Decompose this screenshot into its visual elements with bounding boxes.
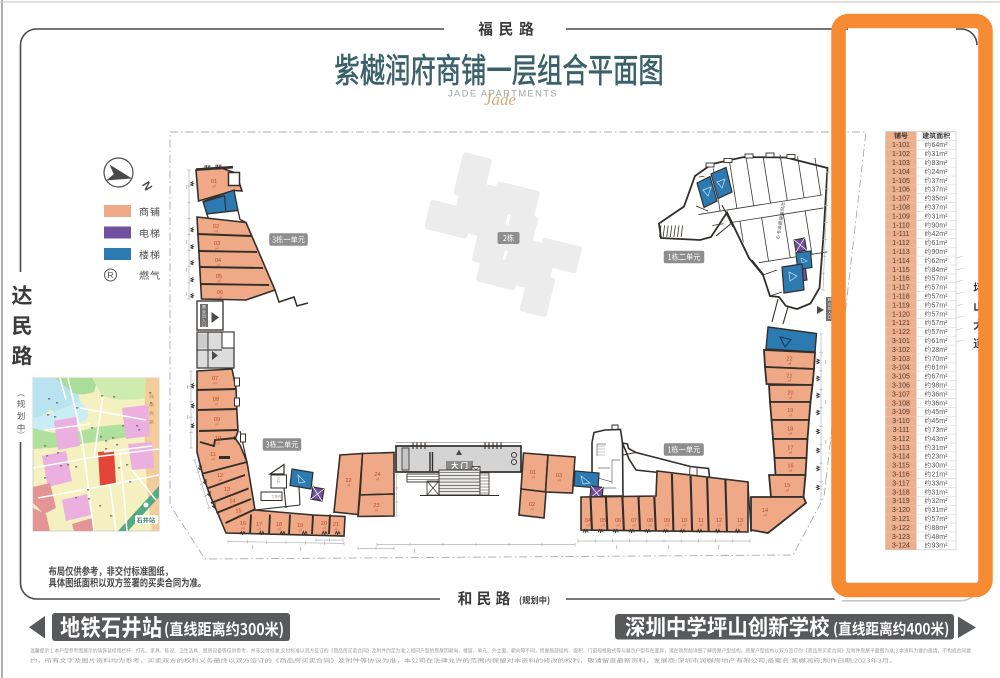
svg-text:23m²: 23m²: [932, 454, 949, 461]
svg-text:11: 11: [210, 452, 216, 458]
svg-text:84m²: 84m²: [932, 267, 949, 274]
svg-text:57m²: 57m²: [932, 302, 949, 309]
svg-text:90m²: 90m²: [932, 249, 949, 256]
svg-text:88m²: 88m²: [932, 525, 949, 532]
svg-text:31m²: 31m²: [932, 507, 949, 514]
svg-text:16: 16: [787, 464, 793, 470]
svg-text:90m²: 90m²: [932, 222, 949, 229]
svg-text:3-108: 3-108: [892, 400, 910, 407]
svg-text:61m²: 61m²: [932, 365, 949, 372]
svg-text:05: 05: [216, 274, 222, 280]
svg-text:3-101: 3-101: [892, 338, 910, 345]
svg-text:24m²: 24m²: [932, 169, 949, 176]
svg-text:36m²: 36m²: [932, 400, 949, 407]
svg-text:3-113: 3-113: [892, 445, 909, 452]
svg-text:73m²: 73m²: [932, 427, 949, 434]
svg-text:1-108: 1-108: [892, 205, 910, 212]
svg-text:03: 03: [556, 473, 562, 479]
svg-text:36m²: 36m²: [932, 391, 949, 398]
svg-text:3-102: 3-102: [892, 347, 910, 354]
svg-text:13: 13: [737, 518, 743, 524]
svg-text:37m²: 37m²: [932, 187, 949, 194]
svg-text:3-124: 3-124: [892, 543, 910, 550]
svg-text:24: 24: [374, 472, 380, 478]
svg-text:3-105: 3-105: [892, 374, 910, 381]
svg-text:21: 21: [333, 522, 339, 528]
svg-text:22: 22: [345, 478, 351, 484]
svg-text:14: 14: [762, 508, 768, 514]
svg-text:23: 23: [373, 503, 379, 509]
svg-text:17: 17: [787, 446, 793, 452]
svg-text:03: 03: [214, 241, 220, 247]
svg-text:1-119: 1-119: [892, 302, 909, 309]
svg-text:3-106: 3-106: [892, 383, 910, 390]
svg-text:19: 19: [297, 523, 303, 529]
svg-text:3-114: 3-114: [892, 454, 909, 461]
svg-text:01: 01: [211, 179, 217, 185]
svg-text:62m²: 62m²: [932, 258, 949, 265]
svg-text:01: 01: [530, 470, 536, 476]
svg-text:21m²: 21m²: [932, 472, 949, 479]
svg-text:3-107: 3-107: [892, 391, 910, 398]
svg-text:09: 09: [664, 518, 670, 524]
svg-text:14: 14: [229, 499, 235, 505]
svg-text:45m²: 45m²: [932, 418, 949, 425]
svg-text:57m²: 57m²: [932, 329, 949, 336]
svg-text:98m²: 98m²: [932, 383, 949, 390]
svg-text:20: 20: [787, 391, 793, 397]
svg-text:3-109: 3-109: [892, 409, 910, 416]
svg-text:05: 05: [600, 518, 606, 524]
svg-text:1-104: 1-104: [892, 169, 910, 176]
svg-text:21: 21: [786, 373, 792, 379]
svg-text:04: 04: [585, 518, 591, 524]
svg-text:45m²: 45m²: [932, 409, 949, 416]
svg-text:31m²: 31m²: [932, 151, 949, 158]
svg-text:3-112: 3-112: [892, 436, 909, 443]
svg-text:1-120: 1-120: [892, 311, 910, 318]
svg-text:1-103: 1-103: [892, 160, 910, 167]
svg-text:3-111: 3-111: [893, 427, 910, 434]
svg-text:30m²: 30m²: [932, 463, 949, 470]
svg-text:19: 19: [787, 408, 793, 414]
svg-text:57m²: 57m²: [932, 311, 949, 318]
svg-text:3-123: 3-123: [892, 534, 910, 541]
svg-text:43m²: 43m²: [932, 436, 949, 443]
svg-text:1-102: 1-102: [892, 151, 910, 158]
svg-text:3-122: 3-122: [892, 525, 910, 532]
svg-text:61m²: 61m²: [932, 240, 949, 247]
svg-text:08: 08: [213, 397, 219, 403]
svg-text:31m²: 31m²: [932, 445, 949, 452]
svg-text:42m²: 42m²: [932, 231, 949, 238]
svg-text:09: 09: [214, 417, 220, 423]
svg-text:1-113: 1-113: [892, 249, 909, 256]
svg-text:20: 20: [321, 521, 327, 527]
svg-text:83m²: 83m²: [932, 160, 949, 167]
svg-text:57m²: 57m²: [932, 285, 949, 292]
svg-text:11: 11: [698, 518, 704, 524]
svg-text:28m²: 28m²: [932, 347, 949, 354]
svg-text:32m²: 32m²: [932, 498, 949, 505]
svg-text:31m²: 31m²: [932, 489, 949, 496]
svg-text:16: 16: [240, 521, 246, 527]
svg-text:3-119: 3-119: [892, 498, 909, 505]
svg-text:3-103: 3-103: [892, 356, 910, 363]
svg-text:57m²: 57m²: [932, 516, 949, 523]
svg-text:1-106: 1-106: [892, 187, 910, 194]
svg-text:3-121: 3-121: [892, 516, 910, 523]
svg-text:1-117: 1-117: [892, 285, 909, 292]
svg-text:10: 10: [215, 436, 221, 442]
svg-text:13: 13: [224, 487, 230, 493]
svg-text:37m²: 37m²: [932, 178, 949, 185]
svg-text:08: 08: [647, 518, 653, 524]
svg-text:70m²: 70m²: [932, 356, 949, 363]
svg-text:R: R: [107, 270, 113, 280]
svg-text:1-109: 1-109: [892, 213, 910, 220]
svg-text:67m²: 67m²: [932, 374, 949, 381]
svg-text:1-111: 1-111: [893, 231, 910, 238]
svg-text:17: 17: [256, 522, 262, 528]
svg-text:1-118: 1-118: [892, 294, 909, 301]
svg-text:1-107: 1-107: [892, 196, 910, 203]
svg-text:1-114: 1-114: [892, 258, 909, 265]
svg-text:1-101: 1-101: [892, 142, 910, 149]
svg-text:07: 07: [212, 376, 218, 382]
svg-text:06: 06: [217, 290, 223, 296]
svg-text:57m²: 57m²: [932, 294, 949, 301]
svg-text:1-115: 1-115: [892, 267, 909, 274]
svg-text:04: 04: [215, 258, 221, 264]
svg-text:3-118: 3-118: [892, 489, 909, 496]
svg-text:64m²: 64m²: [932, 142, 949, 149]
svg-text:1-110: 1-110: [892, 222, 909, 229]
svg-text:31m²: 31m²: [932, 213, 949, 220]
svg-text:15: 15: [235, 509, 241, 515]
svg-text:3-120: 3-120: [892, 507, 910, 514]
svg-text:1-121: 1-121: [892, 320, 910, 327]
svg-text:48m²: 48m²: [932, 534, 949, 541]
svg-text:35m²: 35m²: [932, 196, 949, 203]
svg-text:3-115: 3-115: [892, 463, 909, 470]
svg-text:06: 06: [615, 518, 621, 524]
svg-text:1-116: 1-116: [892, 276, 909, 283]
svg-text:1-112: 1-112: [892, 240, 909, 247]
svg-text:3-104: 3-104: [892, 365, 910, 372]
svg-text:37m²: 37m²: [932, 205, 949, 212]
svg-text:3-110: 3-110: [892, 418, 909, 425]
svg-text:18: 18: [787, 427, 793, 433]
svg-text:02: 02: [529, 502, 535, 508]
svg-text:10: 10: [681, 518, 687, 524]
svg-text:3-116: 3-116: [892, 472, 909, 479]
svg-text:33m²: 33m²: [932, 480, 949, 487]
svg-text:Jade: Jade: [484, 90, 517, 109]
svg-text:3-117: 3-117: [892, 480, 909, 487]
svg-text:93m²: 93m²: [932, 543, 949, 550]
svg-text:02: 02: [213, 224, 219, 230]
svg-text:12: 12: [716, 518, 722, 524]
svg-text:22: 22: [786, 357, 792, 363]
svg-text:12: 12: [217, 473, 223, 479]
svg-text:61m²: 61m²: [932, 338, 949, 345]
svg-text:18: 18: [276, 522, 282, 528]
svg-text:1-122: 1-122: [892, 329, 910, 336]
svg-text:57m²: 57m²: [932, 276, 949, 283]
svg-text:1-105: 1-105: [892, 178, 910, 185]
svg-text:15: 15: [784, 483, 790, 489]
svg-text:07: 07: [631, 518, 637, 524]
svg-text:57m²: 57m²: [932, 320, 949, 327]
